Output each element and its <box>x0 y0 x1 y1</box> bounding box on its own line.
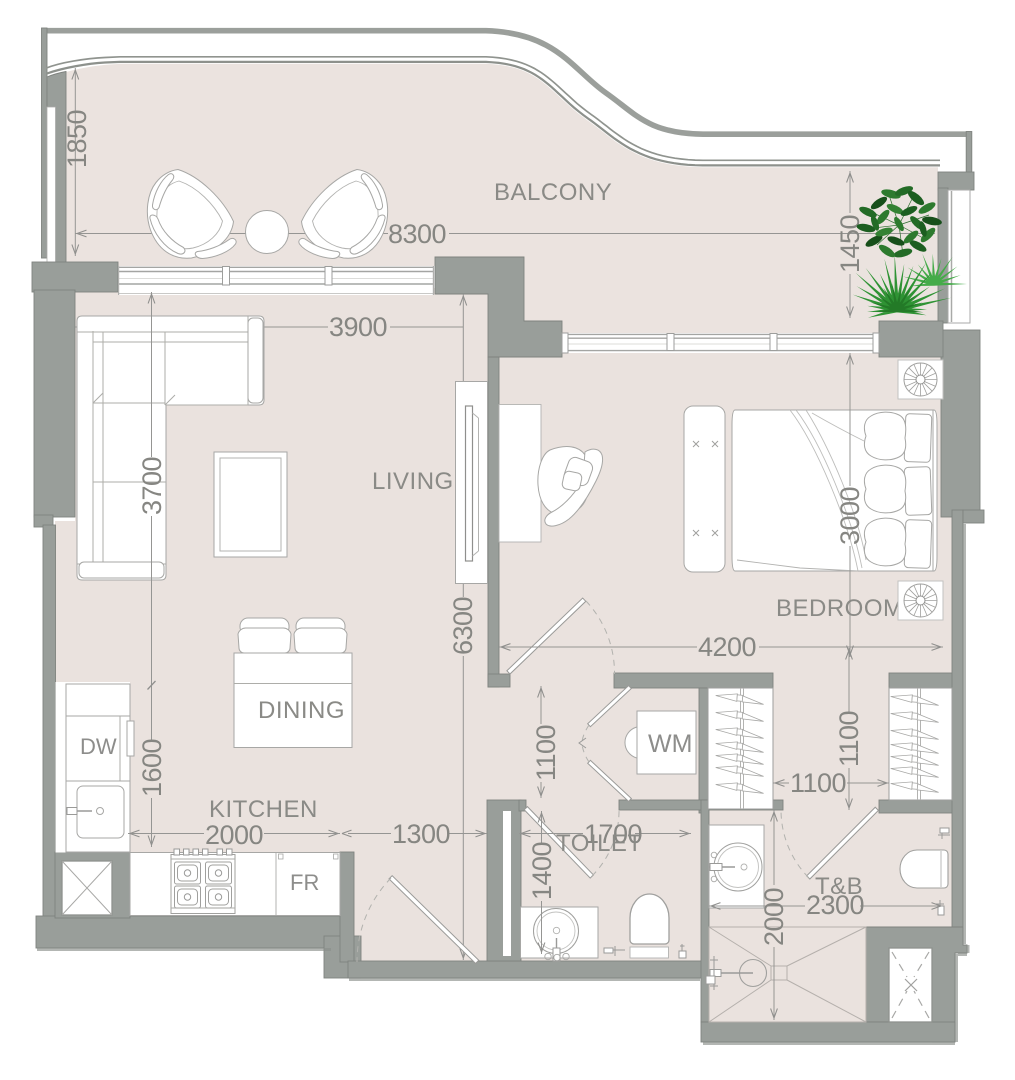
svg-text:BALCONY: BALCONY <box>494 179 612 206</box>
svg-text:LIVING: LIVING <box>372 468 454 495</box>
svg-text:WM: WM <box>648 730 692 758</box>
svg-text:KITCHEN: KITCHEN <box>209 796 318 823</box>
svg-text:DW: DW <box>80 734 117 759</box>
svg-text:4200: 4200 <box>698 632 756 662</box>
svg-text:TOILET: TOILET <box>556 830 643 857</box>
svg-text:2000: 2000 <box>205 820 263 850</box>
svg-text:1100: 1100 <box>834 711 864 767</box>
svg-text:3000: 3000 <box>835 487 865 545</box>
svg-text:6300: 6300 <box>448 597 478 655</box>
svg-text:1450: 1450 <box>835 215 865 273</box>
svg-text:3700: 3700 <box>137 457 167 515</box>
svg-text:1300: 1300 <box>392 819 450 849</box>
svg-text:1600: 1600 <box>137 739 167 797</box>
svg-text:3900: 3900 <box>329 312 387 342</box>
svg-text:DINING: DINING <box>258 697 345 724</box>
svg-text:8300: 8300 <box>388 219 446 249</box>
svg-text:1100: 1100 <box>790 768 846 798</box>
svg-text:1850: 1850 <box>62 110 92 168</box>
svg-text:BEDROOM: BEDROOM <box>776 595 904 622</box>
svg-text:T&B: T&B <box>815 873 863 900</box>
svg-text:1100: 1100 <box>531 725 561 781</box>
svg-text:2000: 2000 <box>759 888 789 946</box>
svg-text:1400: 1400 <box>527 842 557 900</box>
svg-text:FR: FR <box>290 870 319 895</box>
